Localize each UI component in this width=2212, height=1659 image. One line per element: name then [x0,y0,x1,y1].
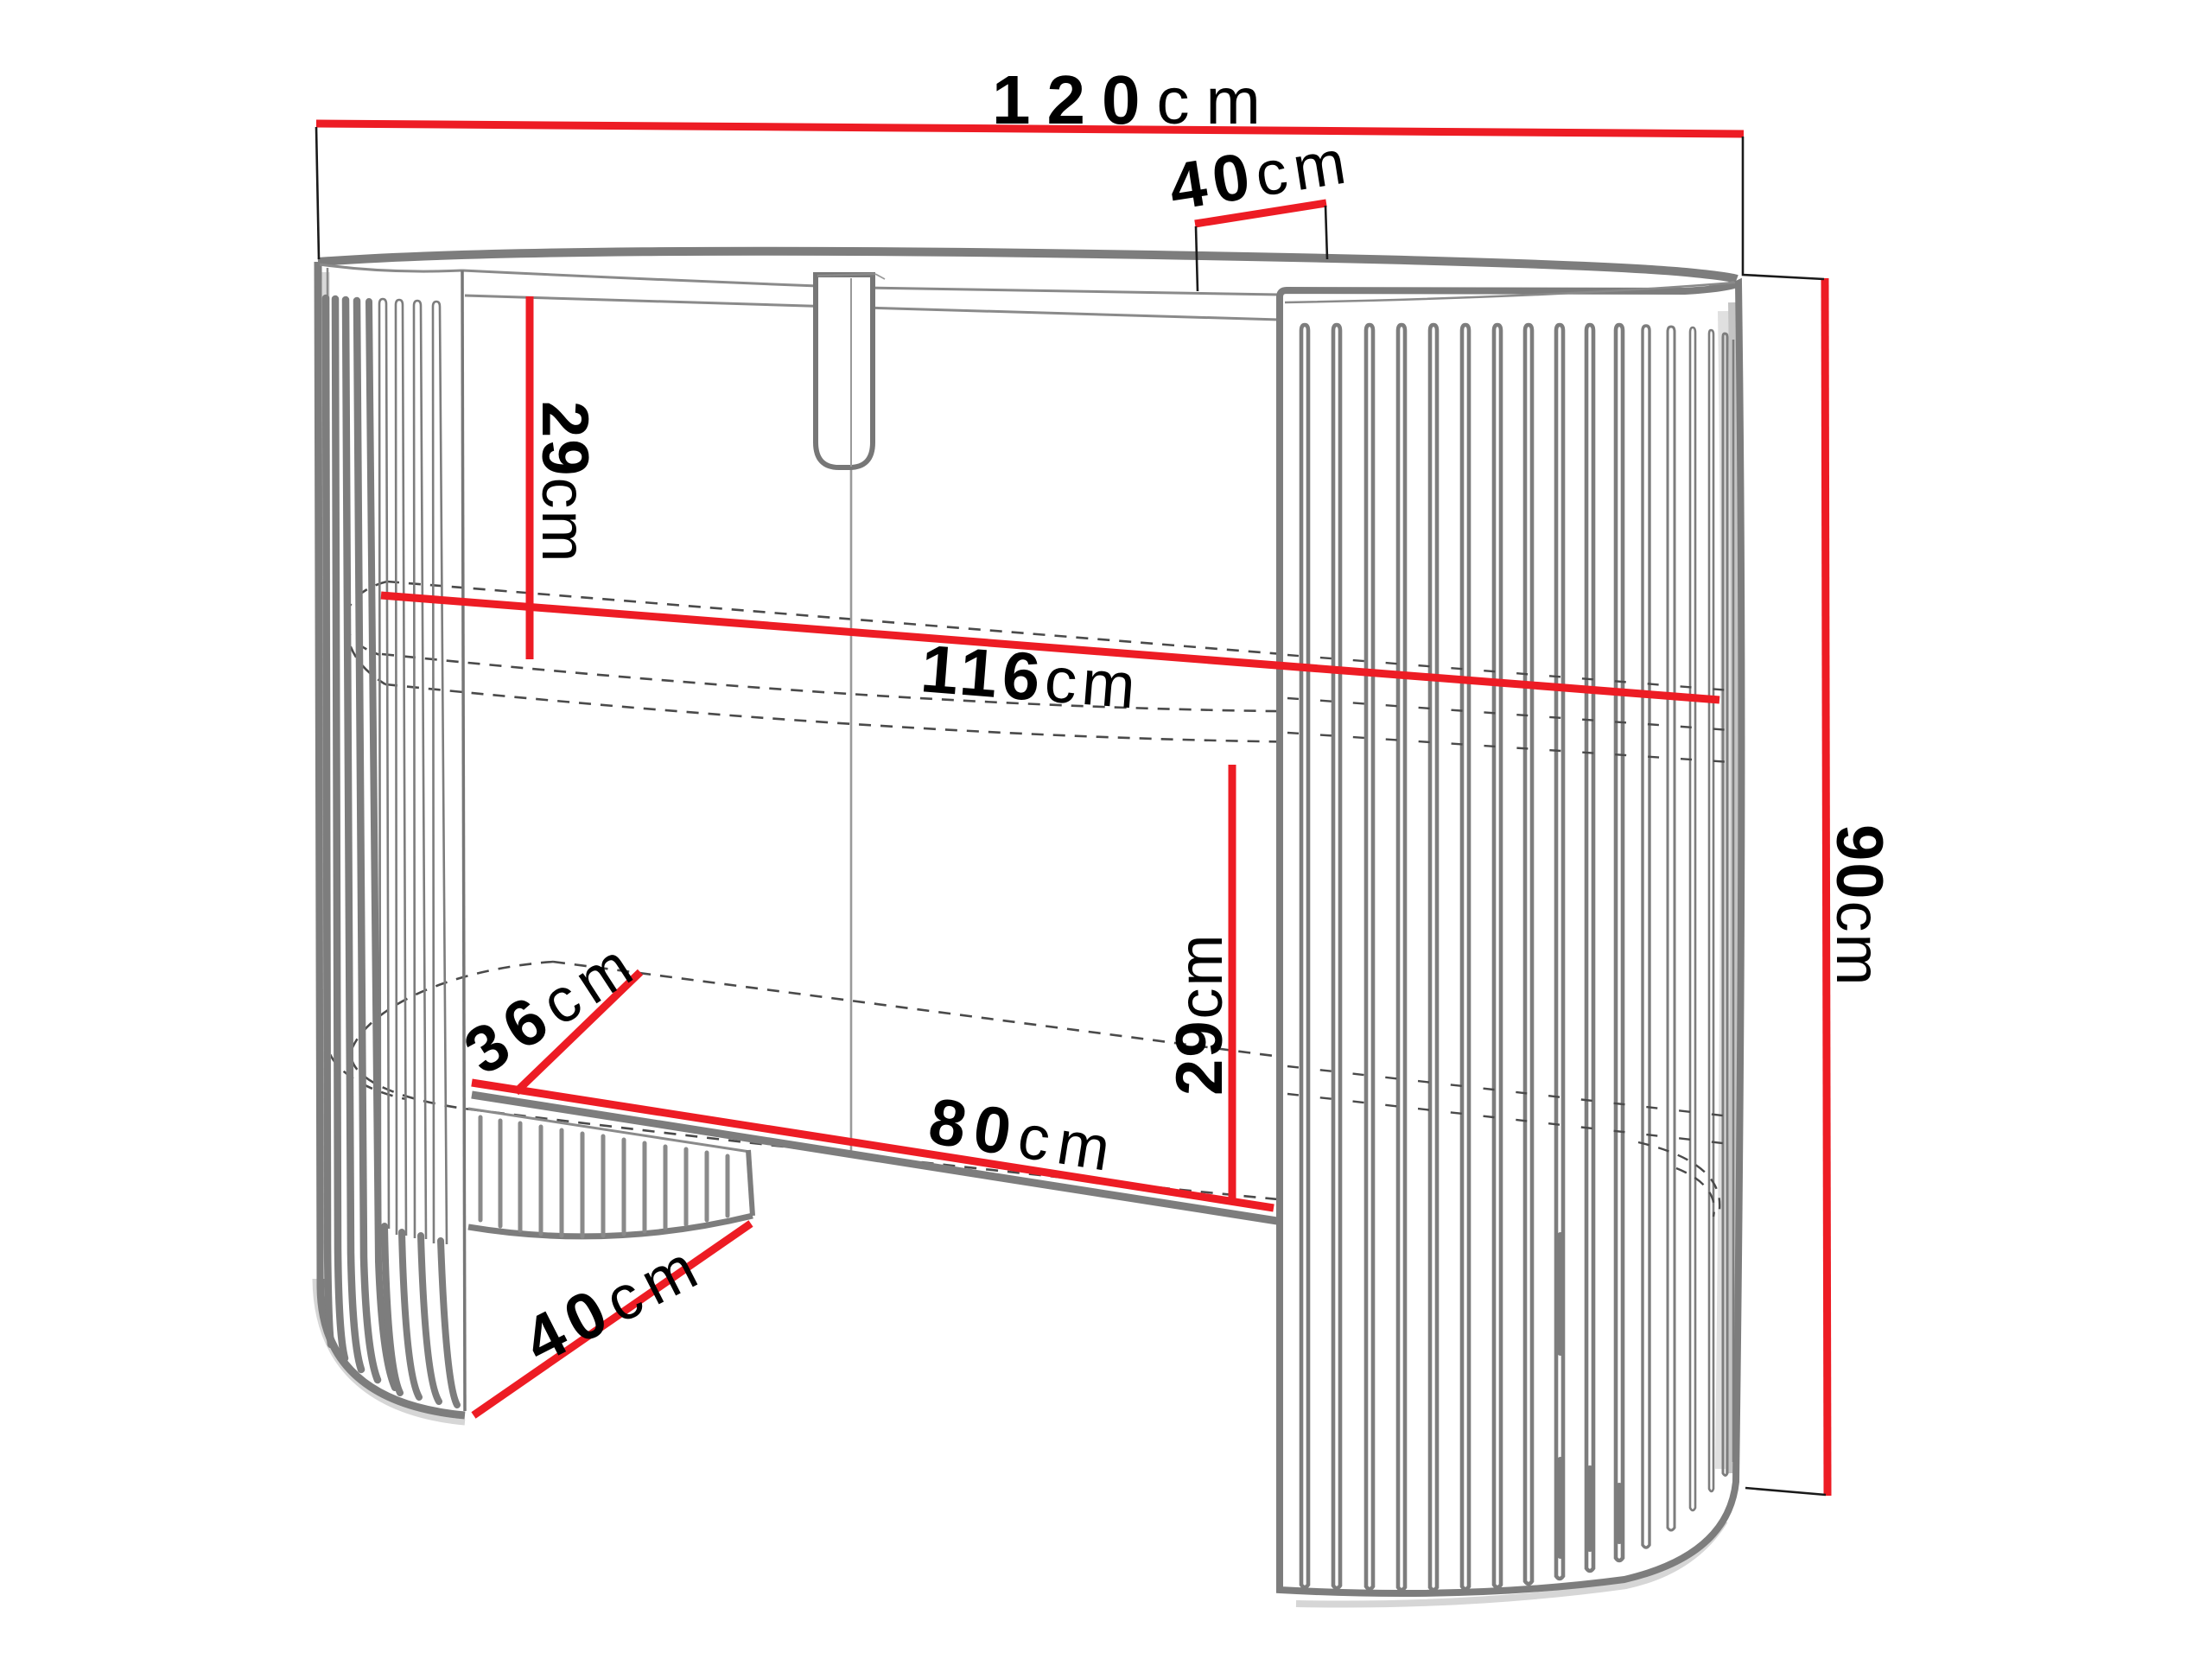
svg-text:90cm: 90cm [1822,824,1896,988]
svg-text:120cm: 120cm [992,61,1277,138]
svg-text:29cm: 29cm [1163,932,1236,1096]
svg-text:29cm: 29cm [528,401,601,564]
